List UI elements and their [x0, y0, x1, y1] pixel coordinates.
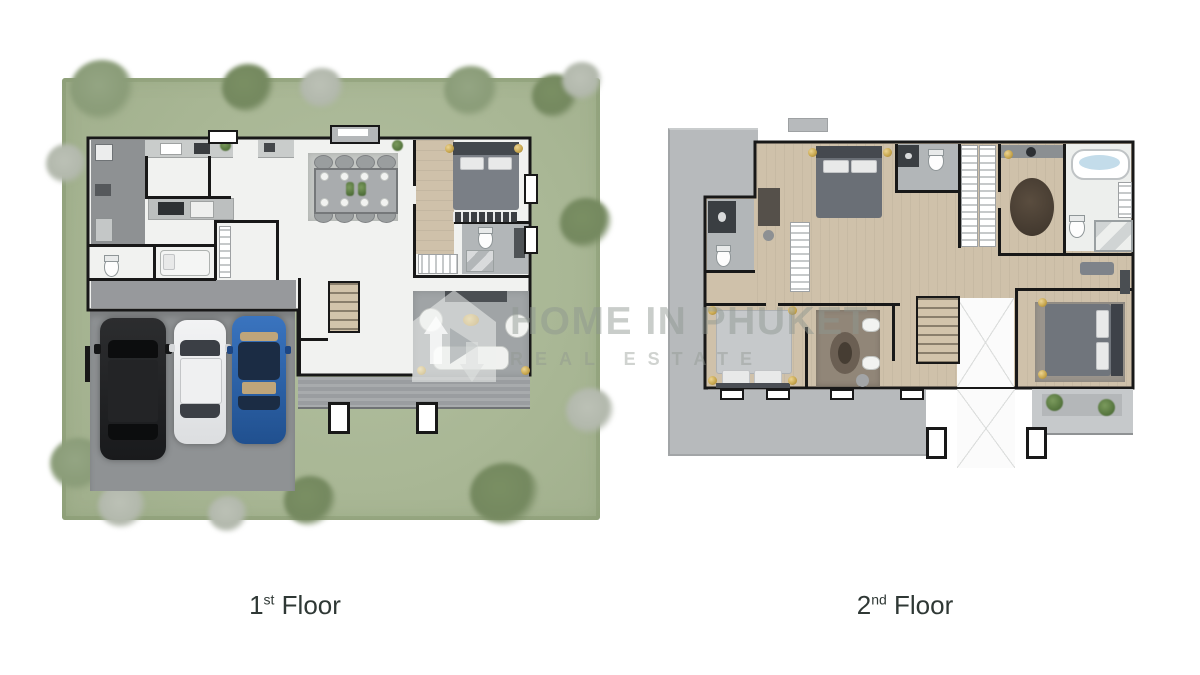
lamp-icon	[417, 366, 426, 375]
toilet-icon	[1069, 218, 1085, 238]
lamp-icon	[514, 144, 523, 153]
pillow-icon	[488, 157, 512, 170]
stove-icon	[194, 143, 210, 154]
oval-rug	[1010, 178, 1054, 236]
wall-segment	[998, 208, 1001, 256]
pillow-icon	[823, 160, 849, 173]
cabinet-icon	[95, 218, 113, 242]
plant-icon	[1046, 394, 1063, 411]
shower-icon	[466, 250, 494, 272]
door-marker-icon	[720, 389, 744, 400]
sofa	[433, 346, 509, 370]
floor-ordinal: nd	[871, 591, 887, 607]
plate-icon	[380, 172, 389, 181]
car-seats	[242, 382, 276, 394]
mirror-icon	[285, 346, 291, 354]
rear-window-icon	[108, 424, 158, 440]
stool-icon	[763, 230, 774, 241]
table-decor	[838, 342, 852, 364]
cooktop-icon	[158, 202, 184, 215]
lamp-icon	[1004, 150, 1013, 159]
bench-icon	[1080, 262, 1114, 275]
door-marker-icon	[766, 389, 790, 400]
wardrobe-icon	[453, 212, 517, 222]
pillow-icon	[1096, 310, 1109, 338]
wall-segment	[298, 338, 328, 341]
first-floor-label: 1st Floor	[200, 590, 390, 621]
void-open-space	[957, 298, 1014, 387]
plate-icon	[360, 172, 369, 181]
sink-icon	[160, 143, 182, 155]
door-marker-icon	[830, 389, 854, 400]
toilet-icon	[716, 248, 731, 267]
second-floor-plan	[660, 112, 1138, 468]
door-marker-icon	[926, 427, 947, 459]
armchair-icon	[862, 318, 880, 332]
mirror-icon	[227, 346, 233, 354]
lamp-icon	[883, 148, 892, 157]
shower-icon	[708, 201, 736, 233]
closet-icon	[219, 226, 231, 278]
wall-segment	[1015, 288, 1018, 388]
wall-segment	[88, 278, 216, 281]
plate-icon	[380, 198, 389, 207]
wall-segment	[413, 275, 530, 278]
wall-segment	[805, 327, 808, 388]
wall-segment	[214, 220, 217, 280]
floor-number: 2	[857, 590, 871, 620]
shelf-icon	[1120, 270, 1130, 294]
bed	[1045, 304, 1111, 376]
lamp-icon	[788, 376, 797, 385]
centerpiece-icon	[358, 182, 366, 196]
terrace-door-icon	[416, 402, 438, 434]
second-floor-label: 2nd Floor	[810, 590, 1000, 621]
rear-window-icon	[238, 396, 280, 410]
toilet-icon	[478, 230, 493, 249]
floor-ordinal: st	[264, 591, 275, 607]
lamp-icon	[1038, 370, 1047, 379]
appliance-icon	[95, 184, 111, 196]
wall-segment	[706, 270, 755, 273]
pillow-icon	[163, 254, 175, 270]
window-icon	[524, 226, 538, 254]
appliance-icon	[95, 144, 113, 161]
rear-window-icon	[180, 404, 220, 418]
floor-word: Floor	[282, 590, 341, 620]
wall-segment	[706, 303, 766, 306]
shower-icon	[1094, 220, 1133, 252]
wall-segment	[1000, 253, 1133, 256]
window-icon	[208, 130, 238, 144]
basin-icon	[1026, 147, 1036, 157]
lamp-icon	[788, 306, 797, 315]
wall-segment	[298, 278, 301, 375]
lamp-icon	[1038, 298, 1047, 307]
pillow-icon	[460, 157, 484, 170]
closet-icon	[961, 145, 978, 247]
tv-console-icon	[445, 291, 507, 302]
mirror-icon	[94, 344, 101, 354]
bed-headboard	[453, 142, 519, 155]
windshield-icon	[238, 342, 280, 380]
armchair-icon	[419, 308, 443, 332]
black-suv-car	[100, 318, 166, 460]
wall-segment	[145, 156, 148, 198]
lamp-icon	[445, 144, 454, 153]
wall-segment	[214, 220, 278, 223]
lamp-icon	[808, 148, 817, 157]
plate-icon	[340, 198, 349, 207]
lamp-icon	[708, 376, 717, 385]
wall-segment	[778, 303, 900, 306]
oven-icon	[190, 201, 214, 218]
bed	[816, 146, 882, 218]
appliance-icon	[264, 143, 275, 152]
closet-icon	[418, 254, 458, 274]
wall-segment	[892, 303, 895, 361]
terrace-door-icon	[328, 402, 350, 434]
bed-headboard	[816, 146, 882, 158]
pillow-icon	[1096, 342, 1109, 370]
armchair-icon	[505, 314, 529, 338]
blue-car	[232, 316, 286, 444]
windshield-icon	[180, 340, 220, 356]
coffee-table-icon	[463, 314, 479, 326]
bed	[716, 310, 792, 374]
closet-icon	[979, 145, 996, 247]
first-floor-plan	[62, 78, 600, 520]
plant-icon	[1098, 399, 1115, 416]
shower-icon	[898, 145, 919, 167]
wall-segment	[897, 190, 959, 193]
wall-segment	[208, 156, 211, 198]
bathtub	[1071, 149, 1130, 180]
wall-segment	[276, 220, 279, 280]
car-roof	[180, 358, 222, 404]
plate-icon	[360, 198, 369, 207]
door-marker-icon	[1026, 427, 1047, 459]
vanity-desk	[758, 188, 780, 226]
void-open-space	[957, 389, 1015, 468]
stairs	[328, 281, 360, 333]
floor-word: Floor	[894, 590, 953, 620]
stairs	[916, 296, 960, 364]
wall-segment	[1063, 144, 1066, 253]
mirror-icon	[169, 344, 175, 352]
plate-icon	[340, 172, 349, 181]
centerpiece-icon	[346, 182, 354, 196]
window-icon	[524, 174, 538, 204]
bedroom-wood-floor	[416, 140, 454, 254]
windshield-icon	[108, 340, 158, 358]
wall-segment	[145, 196, 231, 199]
shelf-icon	[1118, 182, 1132, 218]
pillow-icon	[851, 160, 877, 173]
plate-icon	[320, 172, 329, 181]
floor-number: 1	[249, 590, 263, 620]
lamp-icon	[708, 306, 717, 315]
bathtub-water	[1079, 155, 1120, 170]
wall-segment	[153, 246, 156, 280]
lamp-icon	[521, 366, 530, 375]
armchair-icon	[862, 356, 880, 370]
closet-icon	[790, 222, 810, 292]
car-roof	[108, 360, 158, 422]
entry-door-icon	[338, 129, 368, 136]
mudroom-floor	[91, 280, 296, 308]
plate-icon	[320, 198, 329, 207]
bed-headboard	[716, 383, 790, 388]
bed-headboard	[1111, 304, 1123, 376]
white-car	[174, 320, 226, 444]
wall-segment	[88, 244, 216, 247]
bed	[453, 142, 519, 210]
plant-icon	[392, 140, 403, 151]
door-marker-icon	[900, 389, 924, 400]
toilet-icon	[104, 258, 119, 277]
toilet-icon	[928, 152, 944, 171]
pouf-icon	[856, 374, 869, 387]
wall-segment	[1015, 288, 1133, 291]
car-dashboard	[240, 332, 278, 341]
